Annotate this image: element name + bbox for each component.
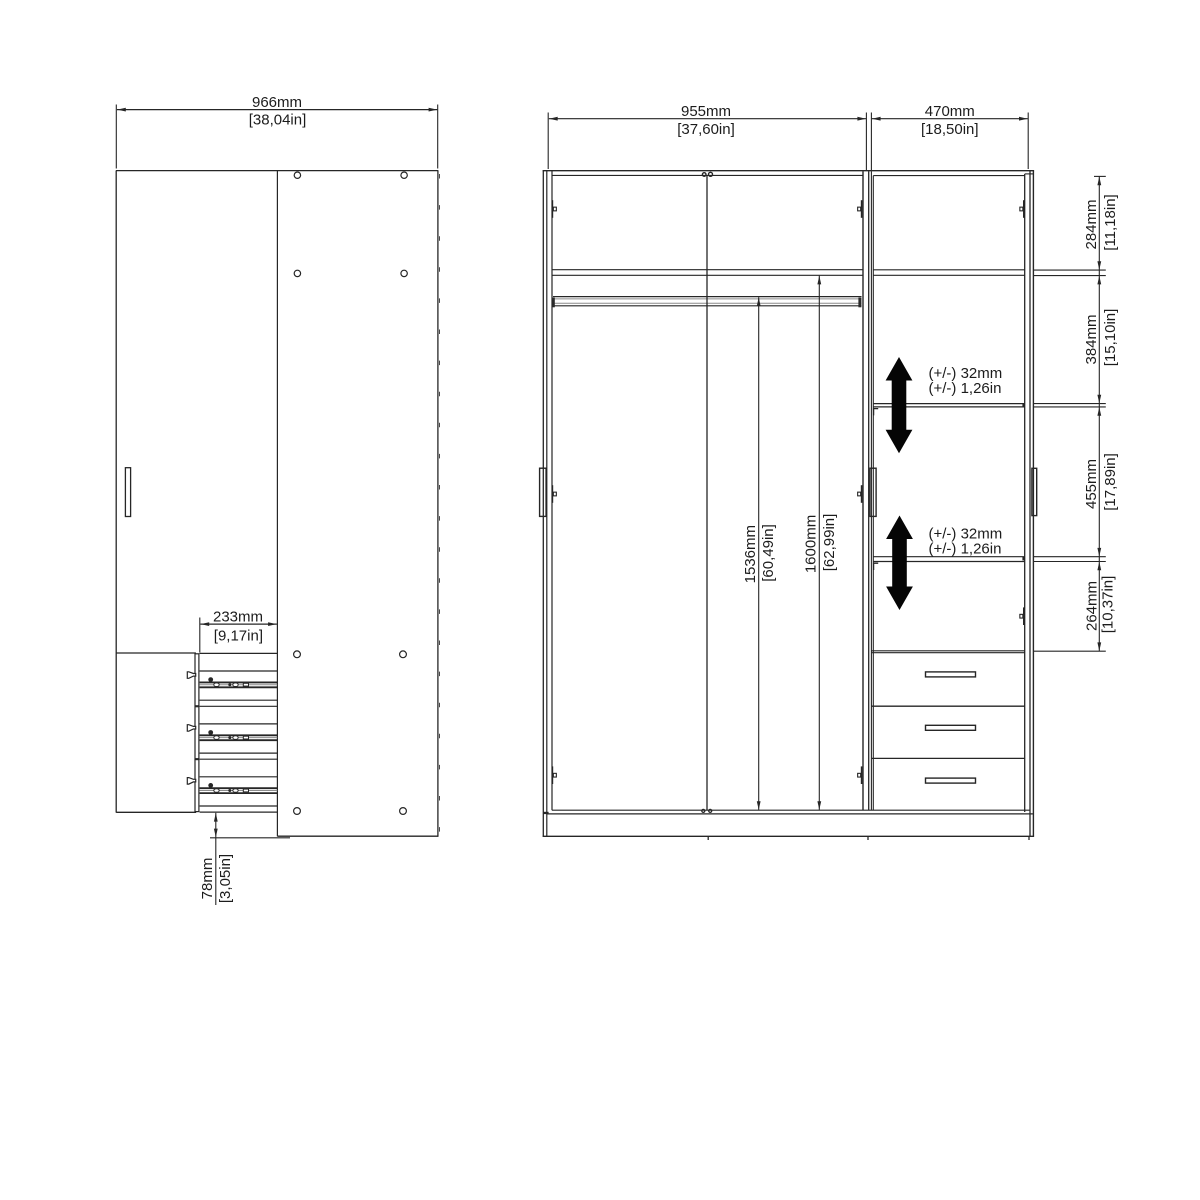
svg-text:[38,04in]: [38,04in]: [249, 112, 307, 129]
svg-text:[60,49in]: [60,49in]: [760, 524, 777, 582]
svg-text:233mm: 233mm: [213, 609, 263, 626]
svg-text:[11,18in]: [11,18in]: [1102, 194, 1119, 250]
svg-text:[3,05in]: [3,05in]: [217, 854, 234, 903]
svg-text:455mm: 455mm: [1083, 459, 1100, 509]
svg-text:[37,60in]: [37,60in]: [677, 121, 735, 138]
svg-text:470mm: 470mm: [925, 103, 975, 120]
svg-text:[9,17in]: [9,17in]: [214, 627, 263, 644]
svg-text:384mm: 384mm: [1083, 314, 1100, 364]
svg-text:[15,10in]: [15,10in]: [1102, 309, 1119, 367]
svg-text:78mm: 78mm: [199, 858, 216, 900]
svg-text:[18,50in]: [18,50in]: [921, 121, 979, 138]
svg-text:1600mm: 1600mm: [803, 515, 820, 573]
svg-text:1536mm: 1536mm: [742, 525, 759, 583]
svg-text:(+/-) 1,26in: (+/-) 1,26in: [929, 380, 1002, 397]
svg-text:[17,89in]: [17,89in]: [1102, 453, 1119, 511]
svg-text:264mm: 264mm: [1083, 581, 1100, 631]
svg-text:[62,99in]: [62,99in]: [821, 514, 838, 572]
svg-text:(+/-) 1,26in: (+/-) 1,26in: [929, 541, 1002, 558]
svg-text:284mm: 284mm: [1083, 199, 1100, 249]
svg-text:966mm: 966mm: [252, 94, 302, 111]
svg-text:[10,37in]: [10,37in]: [1099, 576, 1116, 634]
svg-text:955mm: 955mm: [681, 103, 731, 120]
